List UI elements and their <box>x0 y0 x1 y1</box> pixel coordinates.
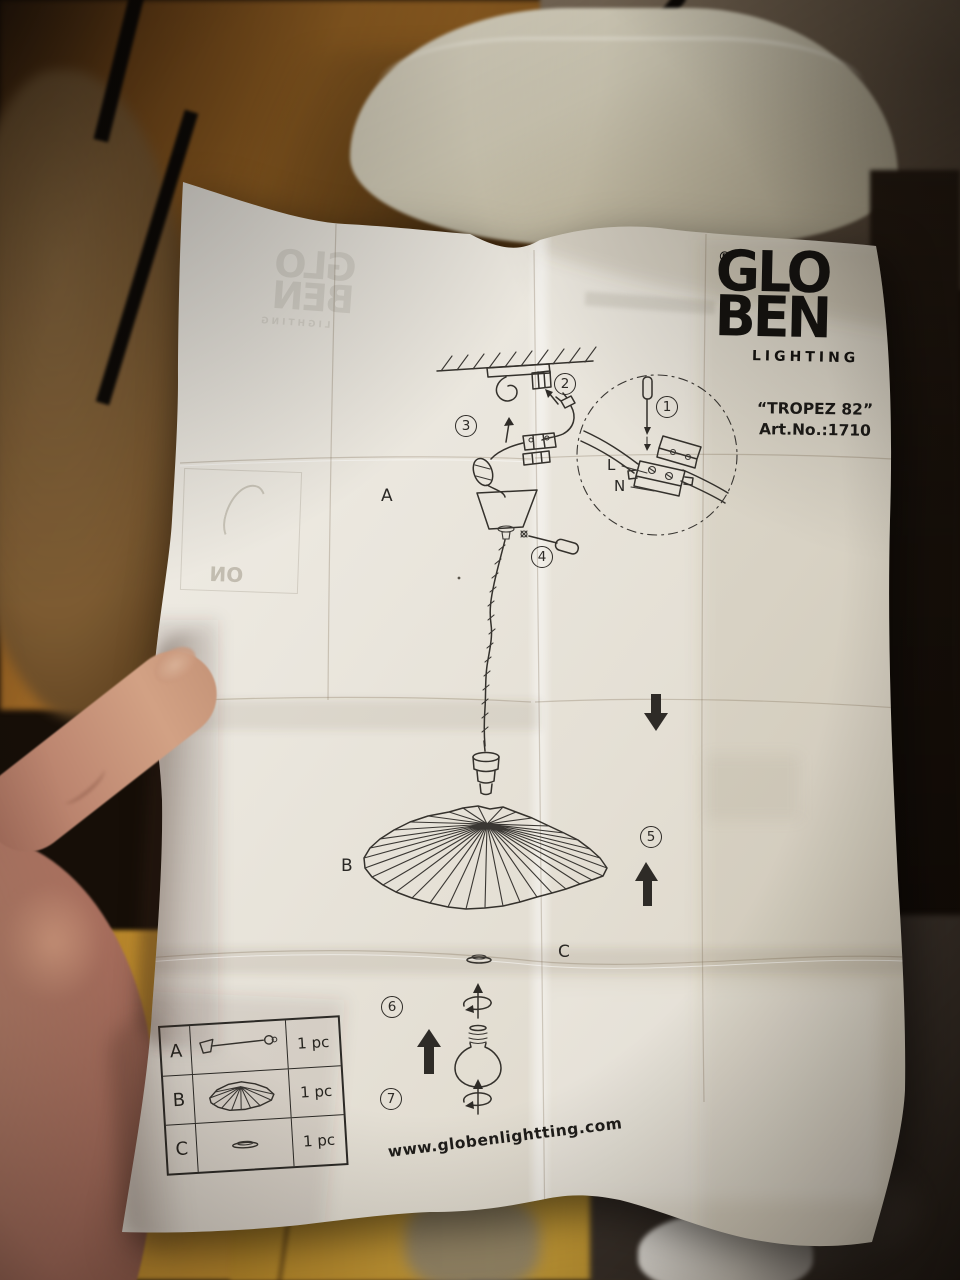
product-name: “TROPEZ 82” <box>740 399 890 419</box>
step-badge-4: 4 <box>531 546 553 568</box>
wire-label-n: N <box>614 477 625 495</box>
step-badge-3: 3 <box>455 415 477 437</box>
ghost-panel: ON <box>180 468 302 594</box>
row-qty: 1 pc <box>289 1066 344 1117</box>
part-a-icon <box>190 1020 289 1074</box>
product-art-no: Art.No.:1710 <box>740 420 890 440</box>
step-badge-7: 7 <box>380 1088 402 1110</box>
part-label-b: B <box>341 856 353 876</box>
ghost-brand-bottom: BEN <box>223 276 355 317</box>
part-label-c: C <box>558 942 570 962</box>
ghost-on-label: ON <box>209 562 244 587</box>
ghost-brand-logo: GLO BEN LIGHTING <box>222 244 357 332</box>
photo: GLO BEN LIGHTING ON GLO® BEN LIGHTING “T… <box>0 0 960 1280</box>
paper-speck <box>458 577 461 580</box>
brand-word-bottom: BEN <box>714 293 875 344</box>
ghost-text-smudge <box>705 755 800 820</box>
row-qty: 1 pc <box>292 1115 347 1166</box>
step-badge-6: 6 <box>381 996 403 1018</box>
part-b-icon <box>193 1069 292 1123</box>
step-badge-5: 5 <box>640 826 662 848</box>
step-badge-1: 1 <box>656 396 678 418</box>
brand-logo: GLO® BEN LIGHTING <box>714 248 876 366</box>
wire-label-l: L <box>607 456 615 474</box>
part-label-a: A <box>381 486 393 506</box>
part-c-icon <box>196 1118 295 1172</box>
row-qty: 1 pc <box>286 1017 341 1068</box>
ghost-arrow-icon <box>218 479 272 549</box>
step-badge-2: 2 <box>554 373 576 395</box>
